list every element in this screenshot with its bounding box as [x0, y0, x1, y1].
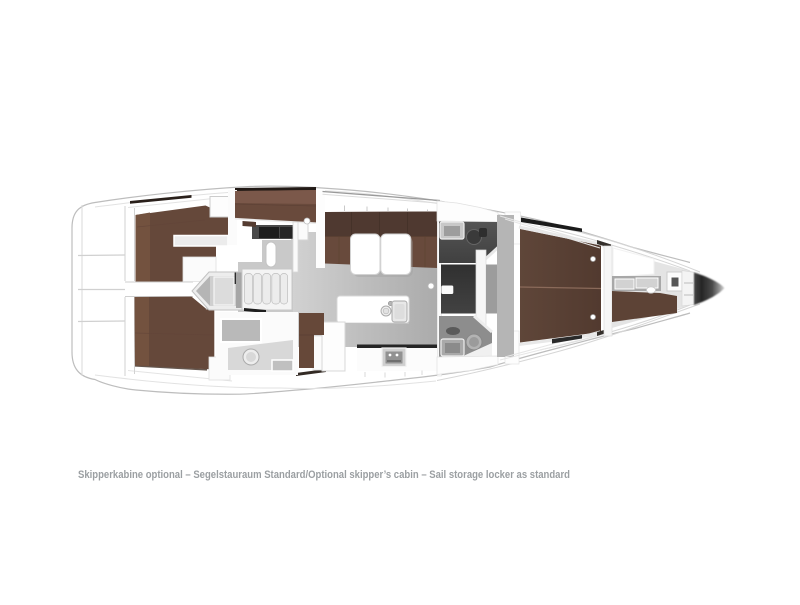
svg-text:Skipperkabine optional – Segel: Skipperkabine optional – Segelstauraum S… — [78, 469, 570, 481]
